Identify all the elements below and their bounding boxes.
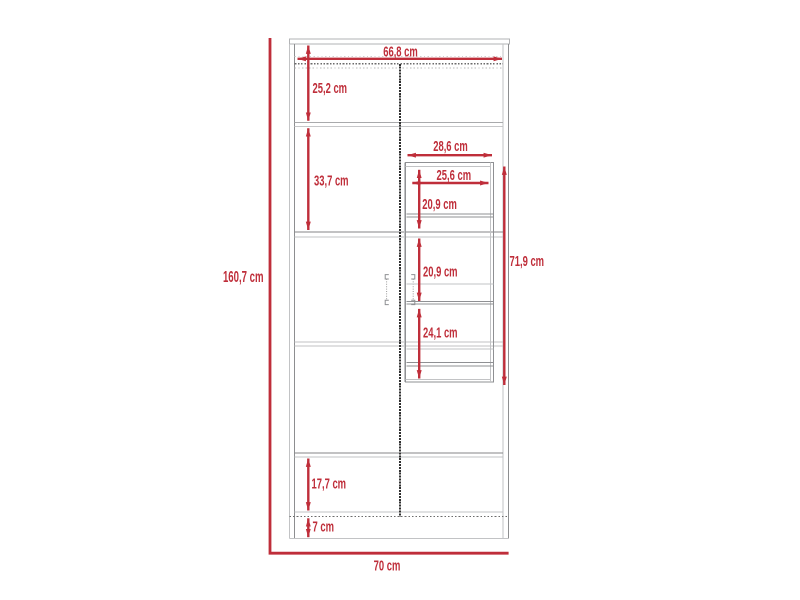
svg-text:66,8 cm: 66,8 cm <box>383 44 418 61</box>
svg-text:33,7 cm: 33,7 cm <box>314 172 349 189</box>
svg-text:160,7 cm: 160,7 cm <box>223 267 264 285</box>
svg-text:24,1 cm: 24,1 cm <box>423 325 458 342</box>
svg-text:7 cm: 7 cm <box>313 518 335 535</box>
svg-text:28,6 cm: 28,6 cm <box>433 138 468 155</box>
svg-text:71,9 cm: 71,9 cm <box>510 253 545 270</box>
svg-text:20,9 cm: 20,9 cm <box>422 196 457 213</box>
svg-text:70 cm: 70 cm <box>374 557 401 574</box>
svg-text:17,7 cm: 17,7 cm <box>312 475 347 492</box>
svg-text:20,9 cm: 20,9 cm <box>423 263 458 280</box>
svg-text:25,2 cm: 25,2 cm <box>313 80 348 97</box>
svg-text:25,6 cm: 25,6 cm <box>437 167 472 184</box>
